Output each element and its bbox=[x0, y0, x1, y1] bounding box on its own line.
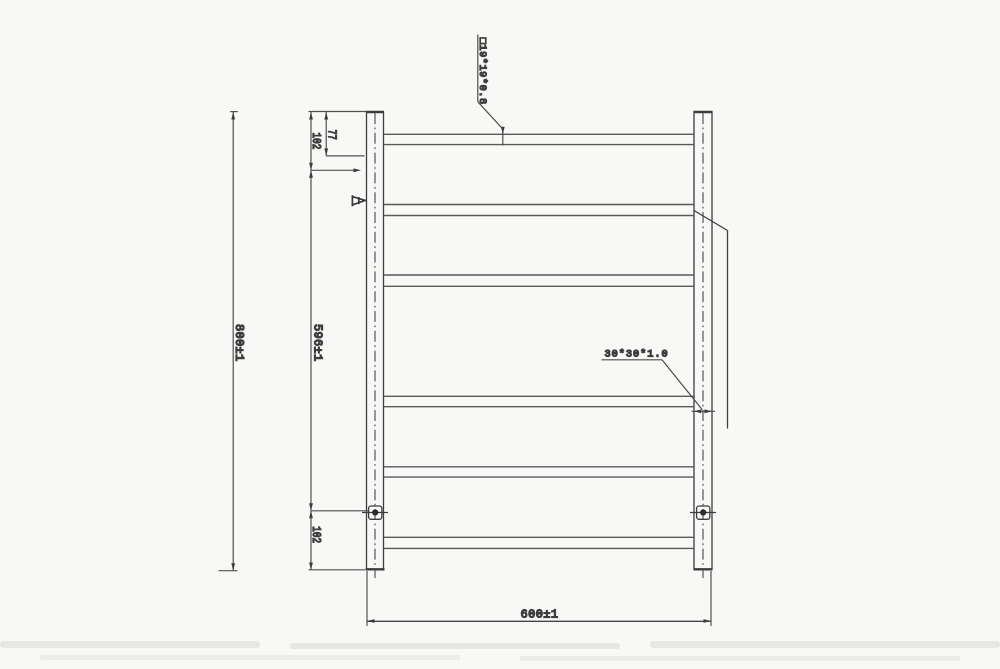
svg-text:596±1: 596±1 bbox=[311, 324, 325, 362]
svg-text:102: 102 bbox=[309, 133, 322, 150]
svg-text:□19*19*0.8: □19*19*0.8 bbox=[476, 38, 488, 105]
svg-text:102: 102 bbox=[309, 526, 322, 543]
svg-text:800±1: 800±1 bbox=[232, 324, 246, 362]
svg-text:30*30*1.0: 30*30*1.0 bbox=[605, 349, 669, 361]
svg-text:77: 77 bbox=[324, 130, 338, 140]
svg-text:600±1: 600±1 bbox=[521, 608, 559, 622]
